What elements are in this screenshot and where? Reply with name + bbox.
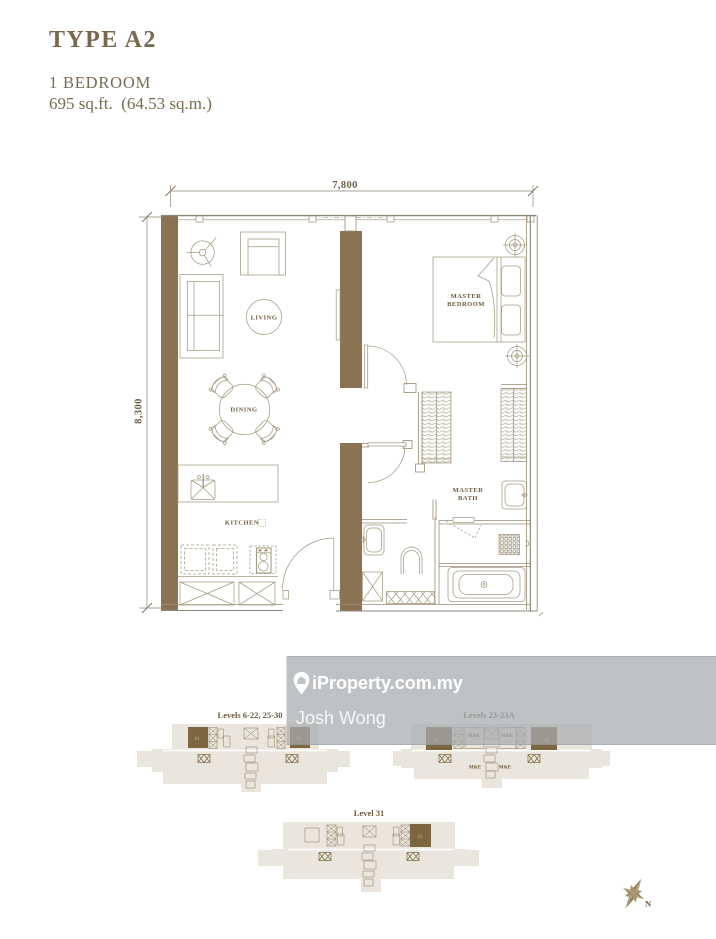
svg-text:BATH: BATH <box>458 495 478 502</box>
svg-text:7,800: 7,800 <box>332 180 358 191</box>
svg-text:N: N <box>645 899 652 909</box>
svg-text:MASTER: MASTER <box>453 487 484 494</box>
svg-text:695 sq.ft. (64.53 sq.m.): 695 sq.ft. (64.53 sq.m.) <box>49 94 212 113</box>
svg-text:Level 31: Level 31 <box>354 808 384 818</box>
svg-text:TYPE A2: TYPE A2 <box>49 27 157 53</box>
svg-text:01: 01 <box>195 737 200 742</box>
svg-text:DINING: DINING <box>230 407 257 414</box>
svg-text:MASTER: MASTER <box>451 293 482 300</box>
svg-text:Levels 6-22, 25-30: Levels 6-22, 25-30 <box>218 710 283 720</box>
svg-text:M&E: M&E <box>499 766 512 771</box>
svg-text:iProperty.com.my: iProperty.com.my <box>312 673 463 693</box>
svg-text:8,300: 8,300 <box>134 398 145 424</box>
svg-text:Josh Wong: Josh Wong <box>296 708 386 728</box>
svg-text:1 BEDROOM: 1 BEDROOM <box>49 73 151 92</box>
svg-text:M&E: M&E <box>469 766 482 771</box>
svg-text:BEDROOM: BEDROOM <box>447 301 485 308</box>
svg-text:KITCHEN: KITCHEN <box>225 520 259 527</box>
svg-text:01: 01 <box>418 835 423 840</box>
svg-text:LIVING: LIVING <box>251 315 278 322</box>
